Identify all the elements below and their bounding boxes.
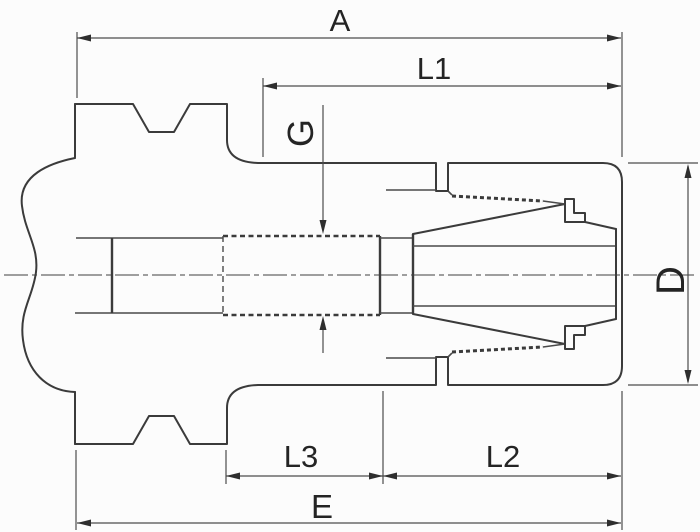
dim-label-l3: L3 <box>284 439 318 474</box>
collet-chuck-drawing: A L1 G D L3 L2 <box>0 0 700 532</box>
body-outline <box>75 104 622 444</box>
dimension-L3: L3 <box>226 391 383 484</box>
thread-serration-bottom <box>452 347 543 352</box>
dimension-E: E <box>76 391 622 530</box>
arrowhead-up <box>320 316 327 330</box>
arrowhead-left <box>383 473 397 480</box>
serration-end-top <box>543 201 565 204</box>
dimension-D: D <box>628 163 698 385</box>
technical-drawing-canvas: A L1 G D L3 L2 <box>0 0 700 532</box>
arrowhead-right <box>607 35 621 42</box>
dim-label-g: G <box>280 119 321 147</box>
dim-label-d: D <box>649 266 693 295</box>
arrowhead-down <box>320 220 327 234</box>
arrowhead-right <box>607 473 621 480</box>
dim-label-a: A <box>330 3 351 38</box>
collet-taper-top <box>413 204 565 234</box>
arrowhead-left <box>263 83 277 90</box>
arrowhead-right <box>607 520 621 527</box>
arrowhead-left <box>77 520 91 527</box>
arrowhead-right <box>607 83 621 90</box>
nut-step-bottom <box>448 353 452 357</box>
arrowhead-left <box>77 35 91 42</box>
serration-end-bottom <box>543 344 565 347</box>
nut-step-top <box>448 191 452 195</box>
dimension-A: A <box>77 3 622 157</box>
nose-chamfer-top <box>585 222 616 229</box>
thread-serration-top <box>452 196 543 201</box>
collet-taper-bottom <box>413 314 565 344</box>
arrowhead-down <box>685 370 692 384</box>
dim-label-e: E <box>311 488 333 525</box>
arrowhead-up <box>685 164 692 178</box>
arrowhead-right <box>369 473 383 480</box>
dim-label-l1: L1 <box>417 51 451 86</box>
dim-label-l2: L2 <box>486 439 520 474</box>
nose-chamfer-bottom <box>585 319 616 326</box>
collet-lug-bottom <box>565 326 585 349</box>
dimension-L2: L2 <box>383 439 621 480</box>
collet-lug-top <box>565 199 585 222</box>
part-outline <box>22 104 622 444</box>
arrowhead-left <box>226 473 240 480</box>
